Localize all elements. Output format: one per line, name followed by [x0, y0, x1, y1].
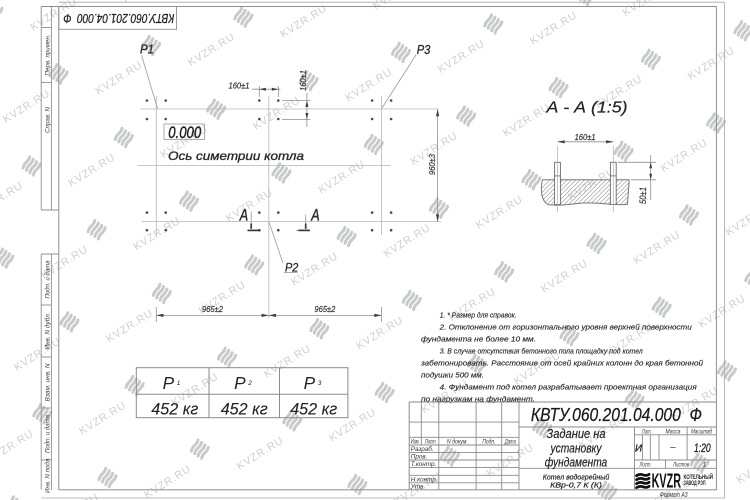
- svg-text:KVZR.RU: KVZR.RU: [501, 101, 552, 139]
- svg-text:KVZR.RU: KVZR.RU: [724, 200, 750, 238]
- svg-text:KVZR.RU: KVZR.RU: [528, 9, 579, 47]
- svg-text:Инв. N дубл.: Инв. N дубл.: [45, 313, 52, 350]
- svg-text:KVZR.RU: KVZR.RU: [697, 292, 748, 330]
- svg-text:Инв. N подл.: Инв. N подл.: [45, 457, 52, 493]
- svg-text:KVZR.RU: KVZR.RU: [121, 0, 172, 5]
- svg-text:965±2: 965±2: [202, 304, 223, 314]
- svg-text:1: 1: [703, 462, 707, 469]
- svg-text:1. * Размер для справок.: 1. * Размер для справок.: [440, 311, 517, 320]
- svg-text:0.000: 0.000: [168, 124, 201, 142]
- svg-text:Р3: Р3: [304, 373, 322, 393]
- svg-text:KVZR.RU: KVZR.RU: [316, 158, 367, 196]
- svg-text:1:20: 1:20: [694, 441, 711, 455]
- svg-text:N докум.: N докум.: [447, 438, 468, 446]
- svg-text:KVZR.RU: KVZR.RU: [66, 151, 117, 189]
- svg-text:Утв.: Утв.: [410, 484, 425, 491]
- svg-text:KVZR.RU: KVZR.RU: [539, 257, 590, 295]
- svg-text:Задание на: Задание на: [546, 426, 605, 441]
- svg-text:КВр-0,7 К (К): КВр-0,7 К (К): [550, 481, 602, 490]
- svg-text:KVZR.RU: KVZR.RU: [0, 428, 36, 466]
- svg-text:KVZR: KVZR: [652, 469, 681, 492]
- svg-text:160±1: 160±1: [298, 70, 308, 91]
- svg-text:KVZR.RU: KVZR.RU: [735, 448, 750, 486]
- svg-text:Р1: Р1: [163, 373, 181, 393]
- svg-text:Н.контр.: Н.контр.: [411, 476, 438, 483]
- svg-text:KVZR.RU: KVZR.RU: [659, 137, 710, 175]
- svg-text:KVZR.RU: KVZR.RU: [343, 66, 394, 104]
- svg-text:Р2: Р2: [234, 373, 252, 393]
- svg-text:Масса: Масса: [666, 428, 681, 435]
- svg-text:Разраб.: Разраб.: [411, 445, 434, 453]
- svg-text:452 кг: 452 кг: [151, 401, 198, 419]
- svg-text:Дата: Дата: [504, 439, 516, 446]
- svg-text:KVZR.RU: KVZR.RU: [278, 2, 329, 40]
- svg-text:KVZR.RU: KVZR.RU: [631, 229, 682, 267]
- svg-text:4. Фундамент под котел разраба: 4. Фундамент под котел разрабатывает про…: [440, 382, 697, 391]
- svg-text:160±1: 160±1: [229, 81, 250, 91]
- svg-text:3. В случае отсутствия бетонно: 3. В случае отсутствия бетонного пола пл…: [440, 346, 643, 355]
- svg-text:KVZR.RU: KVZR.RU: [142, 463, 193, 500]
- svg-text:KVZR.RU: KVZR.RU: [224, 187, 275, 225]
- svg-text:960±3: 960±3: [427, 154, 437, 175]
- svg-text:KVZR.RU: KVZR.RU: [686, 45, 737, 83]
- svg-text:КВТУ.060.201.04.000 Ф: КВТУ.060.201.04.000 Ф: [531, 404, 702, 425]
- svg-text:КОТЕЛЬНЫЙ: КОТЕЛЬНЫЙ: [684, 473, 714, 481]
- svg-text:Пров.: Пров.: [411, 453, 428, 460]
- svg-text:KVZR.RU: KVZR.RU: [436, 38, 487, 76]
- svg-text:KVZR.RU: KVZR.RU: [104, 307, 155, 345]
- svg-text:KVZR.RU: KVZR.RU: [77, 399, 128, 437]
- svg-text:Формат А3: Формат А3: [660, 492, 688, 499]
- svg-text:ЗАВОД РЭП: ЗАВОД РЭП: [684, 481, 706, 487]
- svg-text:50±1: 50±1: [638, 187, 648, 204]
- svg-text:KVZR.RU: KVZR.RU: [474, 193, 525, 231]
- svg-text:KVZR.RU: KVZR.RU: [485, 441, 536, 479]
- svg-text:фундамента: фундамента: [545, 455, 607, 470]
- svg-text:KVZR.RU: KVZR.RU: [0, 180, 25, 218]
- svg-text:Взам. инв. N: Взам. инв. N: [45, 363, 52, 402]
- svg-text:–: –: [669, 442, 676, 453]
- svg-text:KVZR.RU: KVZR.RU: [12, 336, 63, 374]
- svg-text:Лист: Лист: [639, 462, 651, 469]
- svg-text:KVZR.RU: KVZR.RU: [381, 222, 432, 260]
- svg-text:А: А: [239, 206, 248, 224]
- svg-text:Лит.: Лит.: [641, 428, 652, 435]
- svg-text:KVZR.RU: KVZR.RU: [93, 59, 144, 97]
- svg-text:KVZR.RU: KVZR.RU: [131, 215, 182, 253]
- svg-text:KVZR.RU: KVZR.RU: [186, 31, 237, 69]
- svg-text:Ось симетрии котла: Ось симетрии котла: [168, 149, 304, 163]
- svg-text:Перв. примен.: Перв. примен.: [45, 35, 52, 76]
- svg-text:Листов: Листов: [672, 462, 689, 469]
- svg-text:КВТУ.060.201.04.000 Ф: КВТУ.060.201.04.000 Ф: [63, 11, 174, 26]
- svg-text:Подп. и дата: Подп. и дата: [45, 260, 52, 299]
- svg-text:KVZR.RU: KVZR.RU: [50, 491, 101, 500]
- svg-text:Справ. N: Справ. N: [45, 106, 52, 133]
- svg-text:965±2: 965±2: [314, 304, 335, 314]
- svg-text:Т.контр.: Т.контр.: [411, 461, 436, 468]
- svg-text:А: А: [310, 206, 319, 224]
- svg-text:160±1: 160±1: [575, 132, 596, 142]
- svg-text:А - А (1:5): А - А (1:5): [545, 99, 627, 116]
- svg-text:Р3: Р3: [417, 42, 431, 57]
- svg-text:KVZR.RU: KVZR.RU: [354, 314, 405, 352]
- svg-text:KVZR.RU: KVZR.RU: [621, 0, 672, 19]
- svg-text:И: И: [635, 443, 643, 454]
- svg-text:452 кг: 452 кг: [290, 401, 337, 419]
- svg-text:Лист: Лист: [424, 439, 436, 446]
- svg-text:452 кг: 452 кг: [221, 401, 268, 419]
- svg-text:подушки 500 мм.: подушки 500 мм.: [421, 370, 484, 379]
- svg-text:Изм.: Изм.: [411, 439, 420, 446]
- svg-text:забетонировать. Расстояние от: забетонировать. Расстояние от осей крайн…: [420, 358, 703, 367]
- svg-text:Р2: Р2: [285, 263, 299, 275]
- svg-text:KVZR.RU: KVZR.RU: [235, 435, 286, 473]
- svg-text:фундамента не более 10 мм.: фундамента не более 10 мм.: [421, 334, 536, 343]
- svg-text:Р1: Р1: [140, 41, 154, 56]
- svg-text:2. Отклонение от горизонтально: 2. Отклонение от горизонтального уровня …: [439, 323, 692, 332]
- svg-text:Подп.: Подп.: [482, 438, 495, 446]
- svg-text:Масштаб: Масштаб: [691, 427, 712, 435]
- svg-text:Подп. и дата: Подп. и дата: [45, 414, 52, 453]
- svg-text:установку: установку: [550, 440, 603, 455]
